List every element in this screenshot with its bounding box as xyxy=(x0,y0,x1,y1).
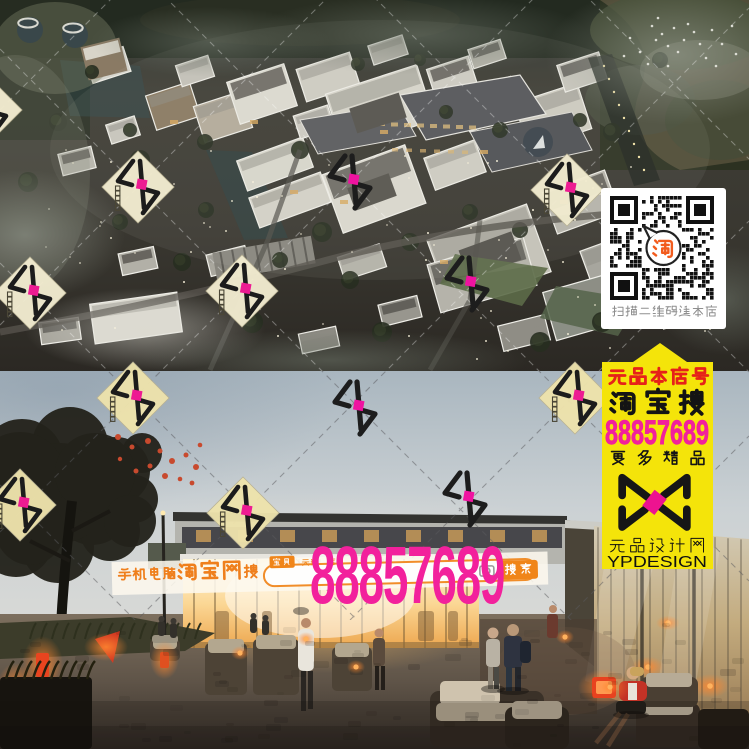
svg-text:88857689: 88857689 xyxy=(605,414,709,452)
svg-text:YPDESIGN: YPDESIGN xyxy=(607,554,707,571)
